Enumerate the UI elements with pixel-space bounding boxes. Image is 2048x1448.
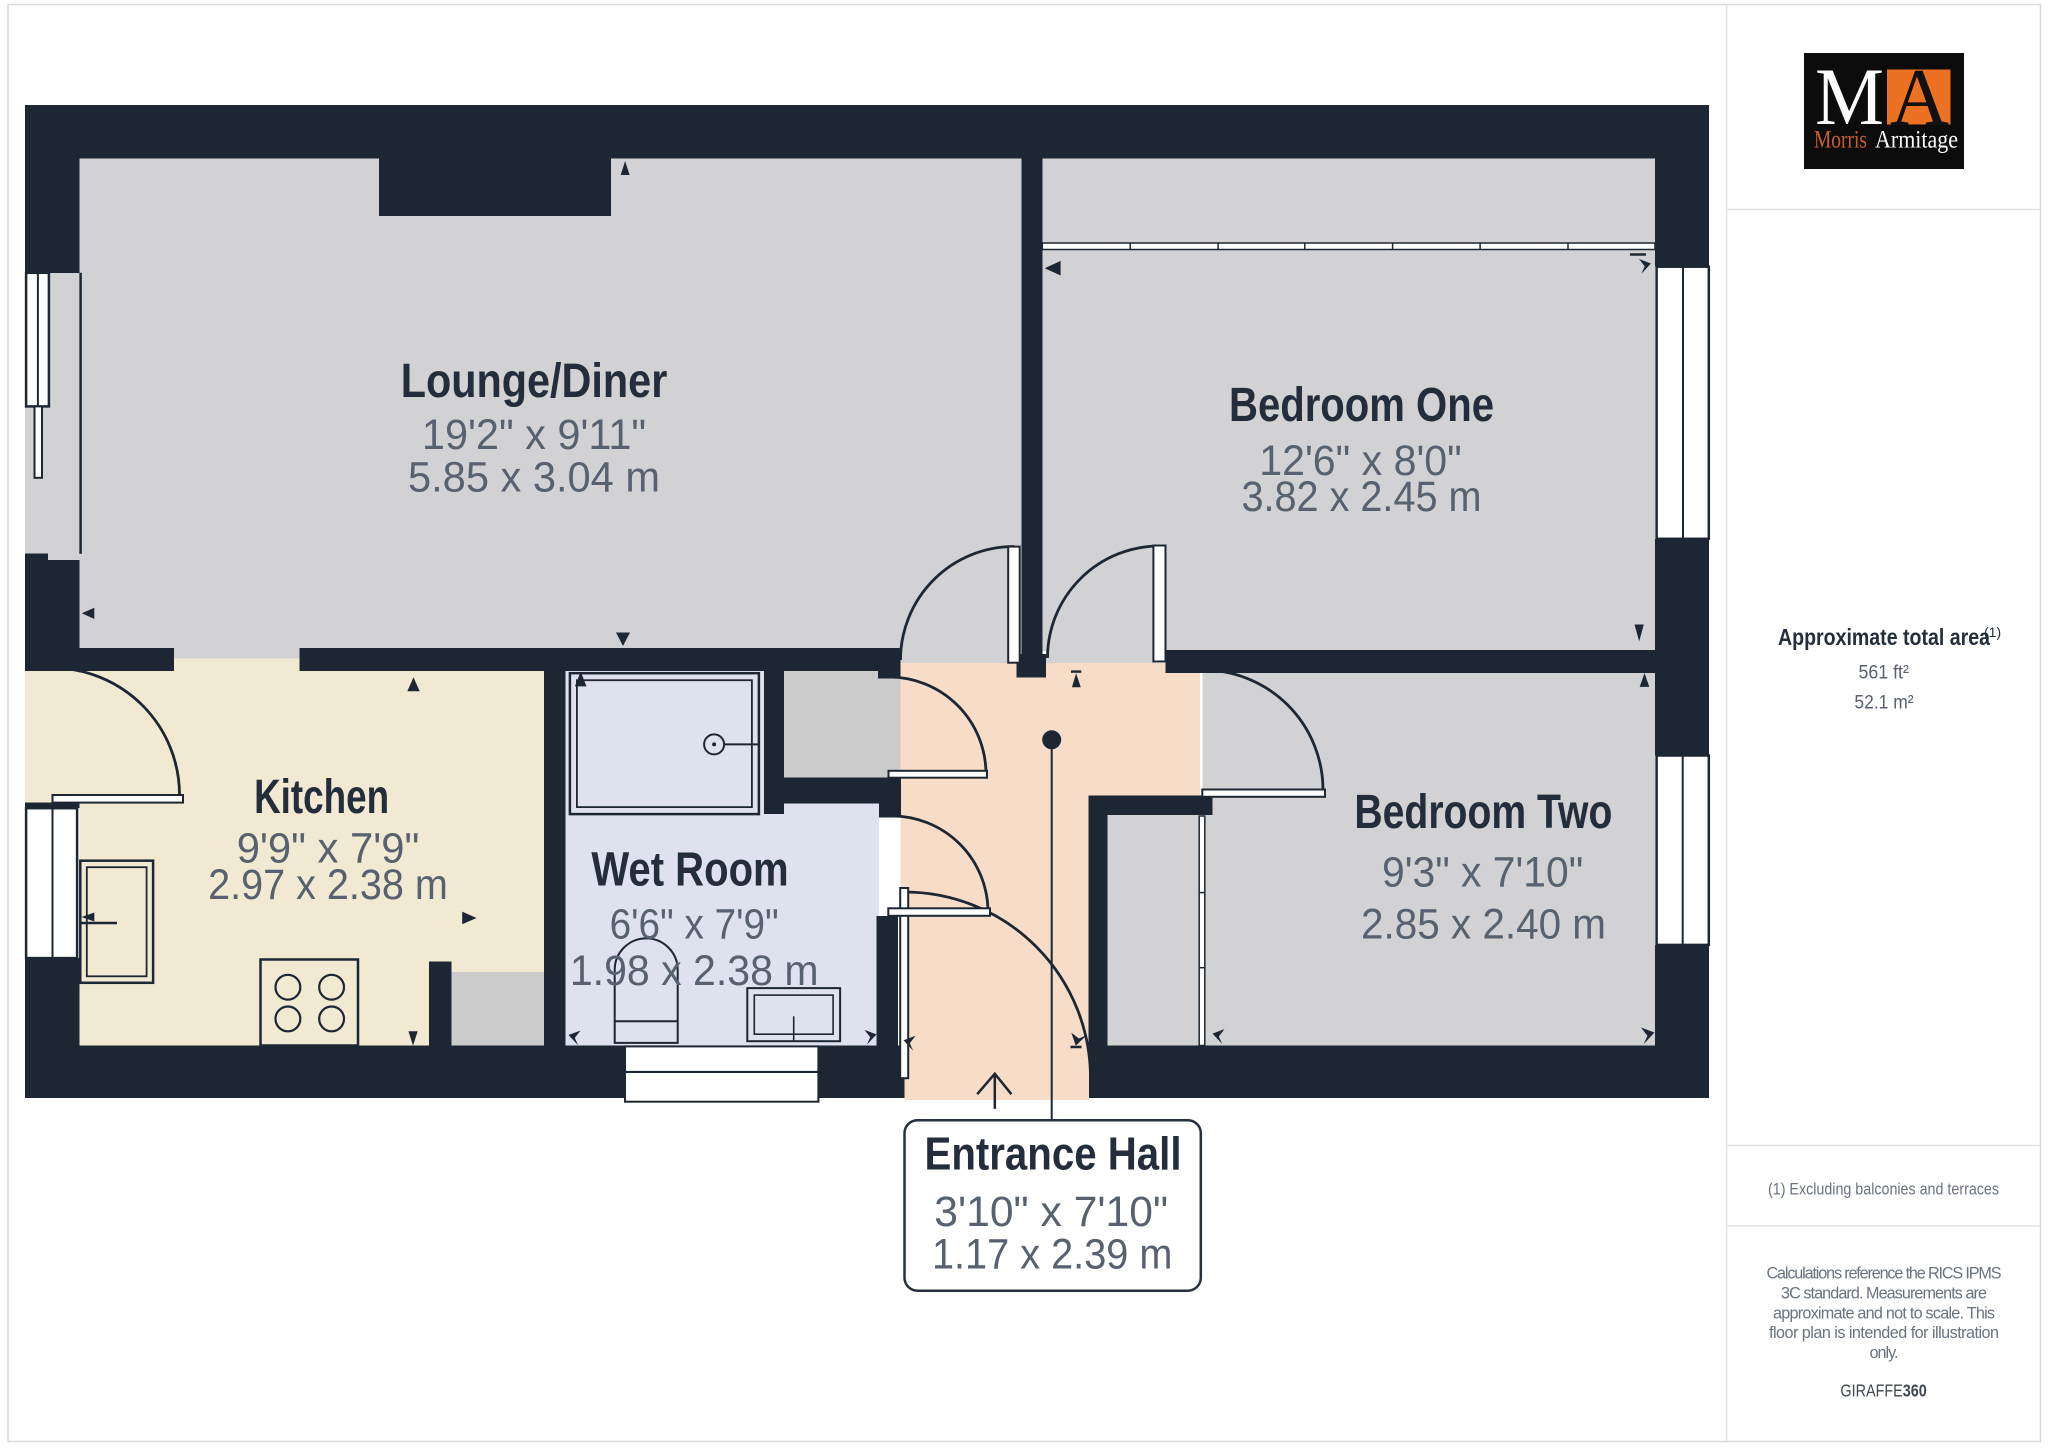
svg-text:1.98 x 2.38 m: 1.98 x 2.38 m xyxy=(570,947,819,995)
svg-text:3.82 x 2.45 m: 3.82 x 2.45 m xyxy=(1242,473,1482,521)
svg-text:floor plan is intended for ill: floor plan is intended for illustration xyxy=(1769,1324,1999,1342)
svg-text:5.85 x 3.04 m: 5.85 x 3.04 m xyxy=(408,453,660,501)
svg-text:561 ft²: 561 ft² xyxy=(1859,661,1910,683)
svg-text:(1) Excluding balconies and te: (1) Excluding balconies and terraces xyxy=(1768,1180,1999,1198)
svg-text:2.85 x 2.40 m: 2.85 x 2.40 m xyxy=(1361,901,1606,949)
svg-text:1.17 x 2.39 m: 1.17 x 2.39 m xyxy=(932,1230,1173,1278)
svg-text:3C standard. Measurements are: 3C standard. Measurements are xyxy=(1781,1285,1987,1303)
svg-text:Wet Room: Wet Room xyxy=(591,843,788,896)
svg-text:Approximate total area: Approximate total area xyxy=(1778,624,1990,650)
svg-text:Morris: Morris xyxy=(1814,124,1867,153)
svg-text:6'6" x 7'9": 6'6" x 7'9" xyxy=(610,900,779,948)
svg-text:Armitage: Armitage xyxy=(1875,124,1958,153)
svg-text:3'10" x 7'10": 3'10" x 7'10" xyxy=(934,1188,1168,1236)
svg-text:2.97 x 2.38 m: 2.97 x 2.38 m xyxy=(208,861,448,909)
svg-text:GIRAFFE360: GIRAFFE360 xyxy=(1840,1380,1927,1400)
svg-text:9'3" x 7'10": 9'3" x 7'10" xyxy=(1382,849,1583,897)
svg-text:Lounge/Diner: Lounge/Diner xyxy=(401,355,668,408)
svg-text:approximate and not to scale.: approximate and not to scale. This xyxy=(1773,1304,1995,1322)
svg-text:only.: only. xyxy=(1870,1344,1899,1362)
svg-text:(1): (1) xyxy=(1984,624,2001,640)
svg-text:Bedroom Two: Bedroom Two xyxy=(1354,786,1612,839)
svg-text:52.1 m²: 52.1 m² xyxy=(1854,692,1914,714)
svg-text:Entrance Hall: Entrance Hall xyxy=(925,1127,1182,1179)
svg-text:Bedroom One: Bedroom One xyxy=(1229,379,1494,432)
svg-text:Calculations reference the RIC: Calculations reference the RICS IPMS xyxy=(1767,1265,2002,1283)
svg-text:Kitchen: Kitchen xyxy=(254,771,389,824)
svg-text:19'2" x 9'11": 19'2" x 9'11" xyxy=(422,411,646,459)
